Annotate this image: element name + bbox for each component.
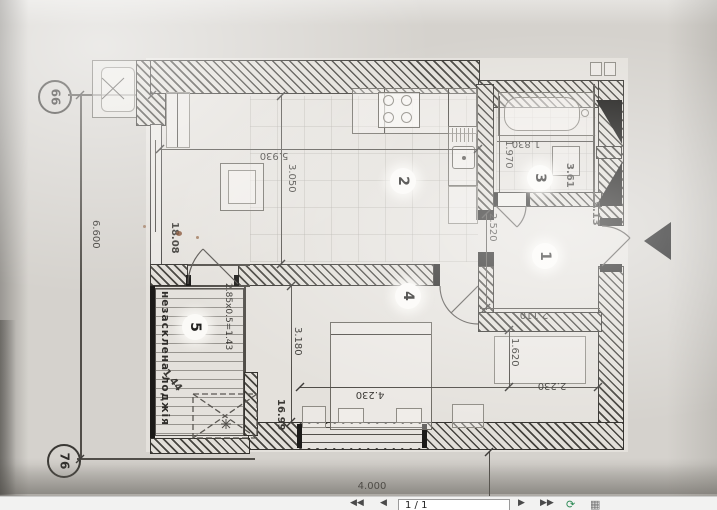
- overall-height-dim: 6.600: [90, 220, 100, 249]
- bedside-table-2: [452, 404, 484, 428]
- door-jamb-room4-a: [434, 264, 440, 286]
- vent-shaft-divider: [596, 146, 622, 159]
- wall-room4-left: [244, 372, 258, 436]
- window-bottom-line2: [300, 434, 424, 435]
- area-hall: 5.13: [590, 201, 600, 226]
- next-page-button[interactable]: ▶: [518, 498, 525, 508]
- axis-marker-top-label: 66: [48, 89, 62, 106]
- area-kitchen: 18.08: [169, 222, 179, 254]
- bathtub-inner: [504, 97, 580, 131]
- room-1-label: 1: [537, 251, 553, 261]
- dim-bottom-4000: 4.000: [352, 482, 392, 492]
- paper-stain-1: [176, 231, 182, 236]
- room-2-label: 2: [395, 176, 411, 186]
- dim-room4-width: 4.230: [350, 389, 390, 399]
- bedside-table-1: [302, 406, 326, 428]
- area-room4: 16.99: [275, 399, 285, 431]
- wall-left-living: [150, 124, 162, 266]
- vent-box-1: [590, 62, 602, 76]
- sink-drain: [462, 156, 466, 160]
- axis-marker-bottom-label: 76: [57, 453, 71, 470]
- paper-stain-2: [196, 236, 199, 239]
- burner-3: [383, 112, 394, 123]
- window-bottom-line3: [300, 442, 424, 443]
- photo-of-floor-plan: 66 76 6.600: [0, 0, 717, 510]
- prev-page-button[interactable]: ◀: [380, 498, 387, 508]
- area-bath: 3.61: [564, 163, 574, 188]
- dim-line-1970: [499, 96, 500, 192]
- vent-box-2: [604, 62, 616, 76]
- dim-ext-line-4000: [489, 452, 490, 496]
- paper-stain-3: [143, 225, 146, 228]
- dim-kitchen-width: 5.930: [254, 150, 294, 160]
- dim-kitchen-height: 3.050: [286, 164, 296, 193]
- bed-line: [331, 334, 431, 335]
- entrance-jamb-bottom: [600, 264, 622, 272]
- dish-rack: [452, 128, 475, 142]
- bath-door-jamb-a: [494, 193, 498, 206]
- pillow-1: [338, 408, 364, 423]
- room-4-label: 4: [400, 291, 416, 301]
- burner-4: [401, 112, 412, 123]
- axis-line-bottom: [77, 458, 255, 460]
- room-5-label: 5: [187, 322, 203, 332]
- bathtub-drain: [581, 109, 589, 117]
- kitchen-cabinet-low: [448, 186, 478, 224]
- wall-kitchen-hall: [476, 84, 494, 216]
- page-number-input[interactable]: 1 / 1: [398, 499, 510, 510]
- neighbor-balcony-inner: [101, 67, 135, 112]
- room-3-label: 3: [532, 173, 548, 183]
- dim-bath-height: 1.970: [503, 140, 513, 169]
- room-number-loggia: 5: [182, 314, 208, 340]
- room-number-hall: 1: [532, 243, 558, 269]
- axis-marker-bottom: 76: [47, 444, 81, 478]
- thumbnails-icon[interactable]: ▦: [590, 498, 600, 510]
- wardrobe: [166, 92, 190, 148]
- last-page-button[interactable]: ▶▶: [540, 498, 554, 508]
- room-number-bath: 3: [527, 165, 553, 191]
- room-number-kitchen: 2: [390, 168, 416, 194]
- entrance-arrow-icon: [644, 222, 671, 260]
- window-left-line: [155, 140, 156, 232]
- rotate-icon[interactable]: ⟳: [566, 498, 575, 510]
- paper-left-shadow: [0, 320, 16, 495]
- burner-2: [401, 95, 412, 106]
- dim-room4-height: 3.180: [292, 327, 302, 356]
- room-number-room4: 4: [395, 283, 421, 309]
- dim-line-3050: [281, 96, 282, 264]
- loggia-left-edge: [150, 286, 155, 438]
- dim-hall-height: 2.520: [487, 213, 497, 242]
- wall-under-loggia: [150, 438, 250, 454]
- loggia-label: незасклена лоджія: [160, 291, 171, 426]
- dim-hall-width: 2.110: [514, 309, 554, 319]
- wardrobe-midline: [177, 93, 178, 147]
- axis-marker-top: 66: [38, 80, 72, 114]
- viewer-toolbar: ◀◀ ◀ 1 / 1 ▶ ▶▶ ⟳ ▦: [0, 496, 717, 510]
- dim-niche-height: 1.620: [509, 338, 519, 367]
- bath-door-opening: [498, 193, 526, 206]
- bath-door-jamb-b: [526, 193, 530, 206]
- entrance-jamb-top: [600, 218, 622, 226]
- loggia-right-line: [244, 286, 246, 374]
- dim-loggia-formula: 2.85х0.5=1.43: [223, 283, 232, 350]
- living-table-inner: [228, 170, 256, 204]
- niche-wardrobe: [494, 336, 586, 384]
- overall-dim-line: [80, 95, 82, 459]
- burner-1: [383, 95, 394, 106]
- dim-niche-width: 2.230: [532, 380, 572, 390]
- dim-line-5930: [160, 149, 478, 150]
- wall-loggia-left-seg: [150, 264, 188, 286]
- pillow-2: [396, 408, 422, 423]
- loggia-door-jamb-a: [186, 275, 191, 286]
- wall-right-lower: [598, 266, 624, 448]
- loggia-door-jamb-b: [234, 275, 239, 286]
- first-page-button[interactable]: ◀◀: [350, 498, 364, 508]
